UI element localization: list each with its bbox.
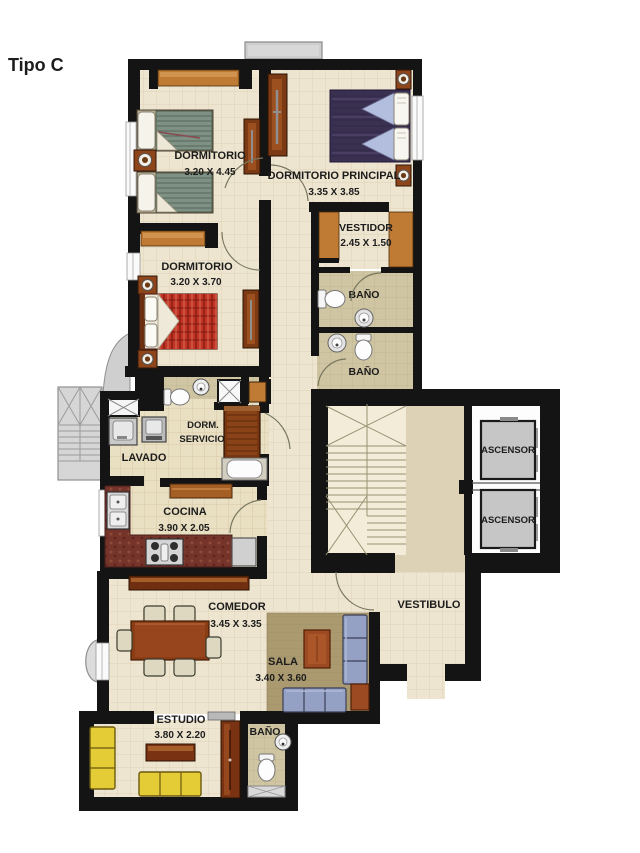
svg-text:SALA: SALA [268, 656, 298, 668]
svg-text:3.90 X 2.05: 3.90 X 2.05 [158, 523, 210, 534]
svg-text:DORMITORIO: DORMITORIO [161, 261, 233, 273]
svg-text:3.40 X 3.60: 3.40 X 3.60 [255, 673, 307, 684]
svg-text:3.35 X 3.85: 3.35 X 3.85 [308, 187, 360, 198]
svg-text:DORMITORIO PRINCIPAL: DORMITORIO PRINCIPAL [268, 170, 401, 182]
svg-text:LAVADO: LAVADO [122, 452, 167, 464]
svg-text:ASCENSOR: ASCENSOR [481, 515, 535, 526]
svg-text:3.80 X 2.20: 3.80 X 2.20 [154, 730, 206, 741]
svg-text:COCINA: COCINA [163, 506, 206, 518]
svg-text:3.45 X 3.35: 3.45 X 3.35 [210, 619, 262, 630]
svg-text:VESTIBULO: VESTIBULO [398, 599, 461, 611]
svg-text:Tipo C: Tipo C [8, 55, 64, 75]
svg-text:2.45 X 1.50: 2.45 X 1.50 [340, 238, 392, 249]
svg-text:ESTUDIO: ESTUDIO [157, 714, 206, 726]
svg-text:VESTIDOR: VESTIDOR [339, 222, 393, 234]
svg-text:BAÑO: BAÑO [250, 725, 281, 738]
svg-text:DORMITORIO: DORMITORIO [174, 150, 246, 162]
svg-text:COMEDOR: COMEDOR [208, 601, 266, 613]
svg-text:BAÑO: BAÑO [349, 365, 380, 378]
svg-text:DORM.: DORM. [187, 420, 219, 431]
svg-text:3.20 X 3.70: 3.20 X 3.70 [170, 277, 222, 288]
svg-text:3.20 X 4.45: 3.20 X 4.45 [184, 167, 236, 178]
svg-text:ASCENSOR: ASCENSOR [481, 445, 535, 456]
svg-text:SERVICIO: SERVICIO [179, 434, 224, 445]
